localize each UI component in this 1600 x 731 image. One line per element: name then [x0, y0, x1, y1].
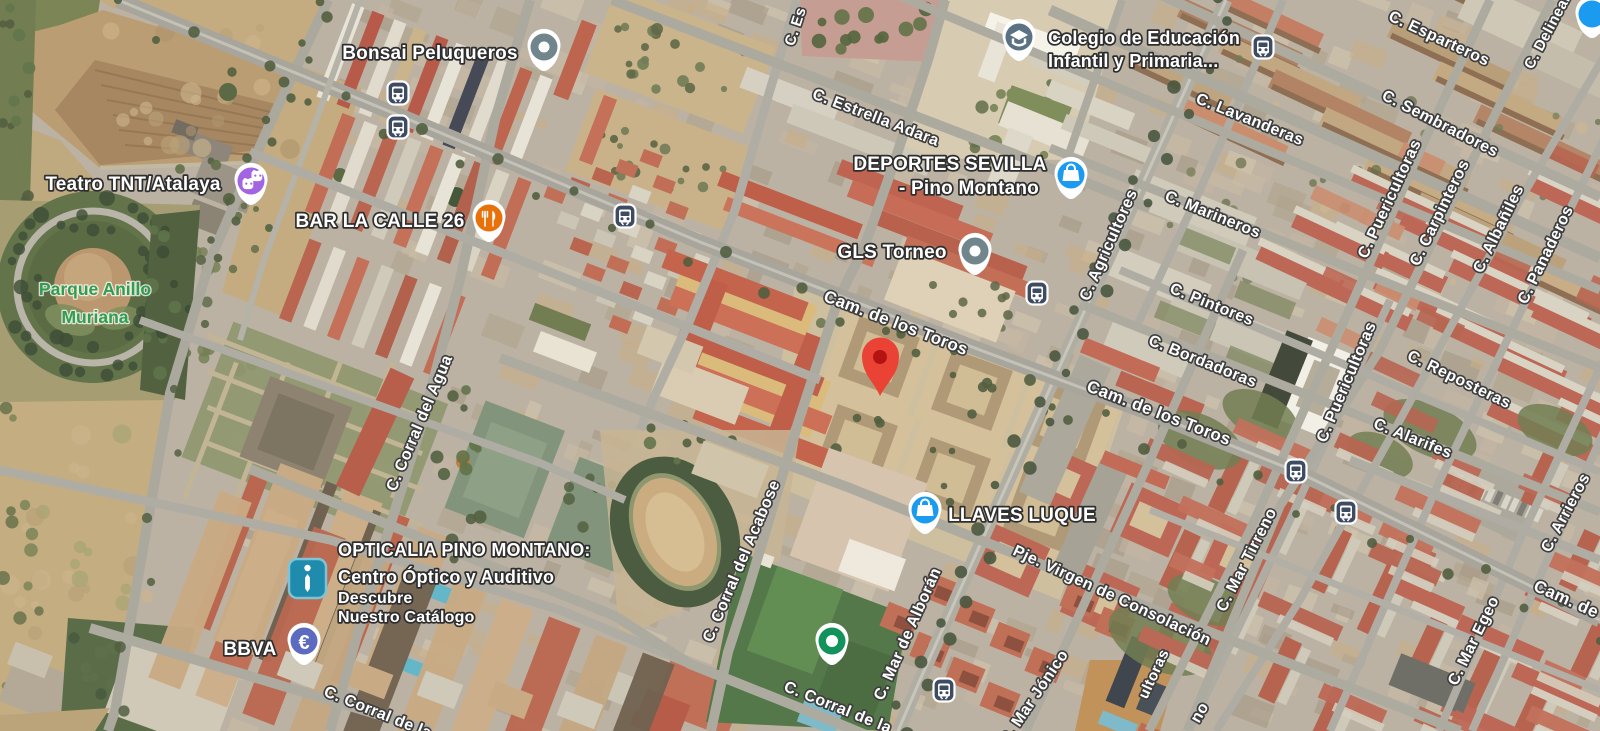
svg-text:Infantil y Primaria...: Infantil y Primaria... — [1048, 51, 1218, 71]
svg-text:Teatro TNT/Atalaya: Teatro TNT/Atalaya — [45, 174, 221, 195]
svg-text:DEPORTES SEVILLA: DEPORTES SEVILLA — [853, 154, 1046, 175]
svg-text:Muriana: Muriana — [61, 307, 128, 327]
svg-text:Bonsai Peluqueros: Bonsai Peluqueros — [342, 43, 518, 64]
svg-text:BAR LA CALLE 26: BAR LA CALLE 26 — [295, 211, 464, 232]
svg-text:OPTICALIA PINO MONTANO:: OPTICALIA PINO MONTANO: — [338, 540, 591, 560]
svg-text:Colegio de Educación: Colegio de Educación — [1048, 28, 1240, 48]
svg-text:- Pino Montano: - Pino Montano — [899, 178, 1039, 199]
svg-text:GLS Torneo: GLS Torneo — [837, 242, 946, 263]
svg-text:€: € — [298, 632, 309, 654]
svg-text:Parque Anillo: Parque Anillo — [39, 279, 151, 299]
svg-text:Descubre: Descubre — [338, 590, 413, 607]
svg-text:Centro Óptico y Auditivo: Centro Óptico y Auditivo — [338, 566, 554, 587]
svg-text:Nuestro Catálogo: Nuestro Catálogo — [338, 609, 475, 626]
svg-text:BBVA: BBVA — [223, 639, 276, 660]
svg-text:LLAVES LUQUE: LLAVES LUQUE — [948, 505, 1096, 526]
